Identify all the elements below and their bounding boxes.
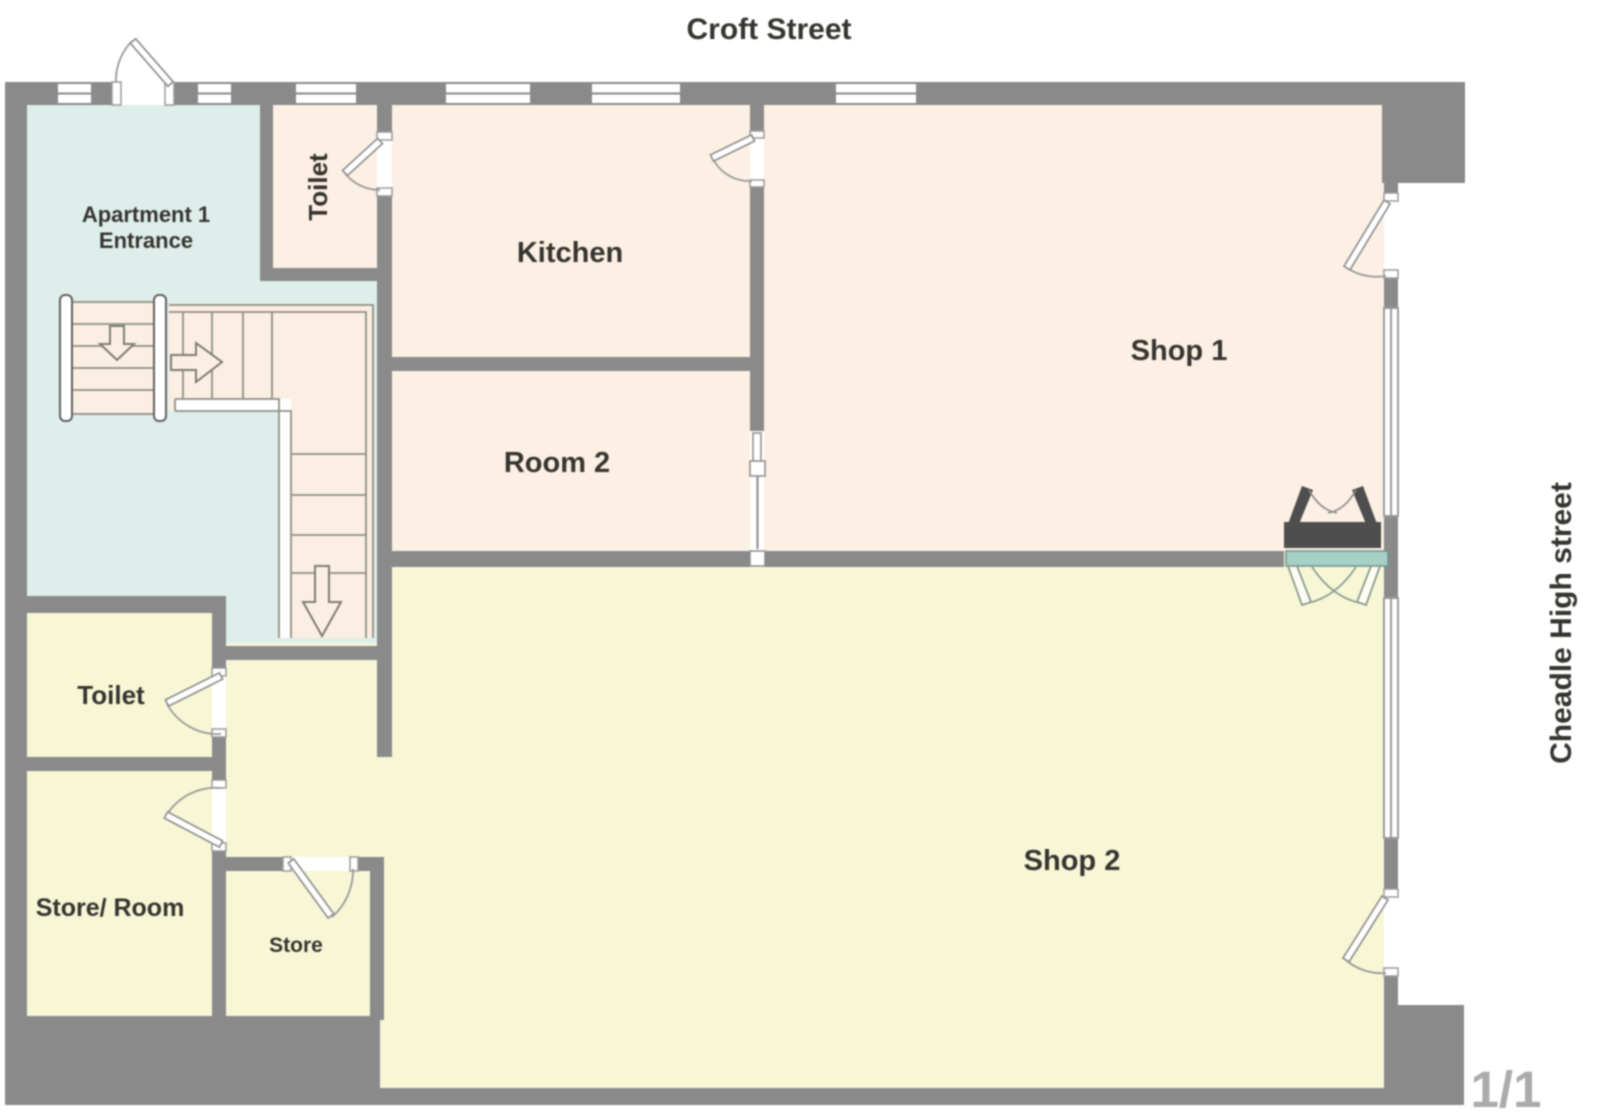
svg-text:Shop 2: Shop 2 (1024, 845, 1121, 877)
svg-text:Croft Street: Croft Street (686, 13, 851, 46)
svg-text:Entrance: Entrance (99, 228, 193, 253)
svg-text:Cheadle High street: Cheadle High street (1545, 482, 1578, 764)
svg-text:Toilet: Toilet (77, 680, 145, 710)
svg-text:Apartment 1: Apartment 1 (82, 202, 210, 227)
svg-text:Shop 1: Shop 1 (1131, 335, 1228, 367)
svg-text:Room 2: Room 2 (504, 447, 610, 479)
svg-text:Toilet: Toilet (303, 153, 333, 221)
svg-text:Store/ Room: Store/ Room (36, 894, 185, 922)
svg-text:Store: Store (269, 934, 323, 957)
svg-text:Kitchen: Kitchen (517, 237, 623, 269)
svg-text:1/1: 1/1 (1471, 1061, 1542, 1116)
